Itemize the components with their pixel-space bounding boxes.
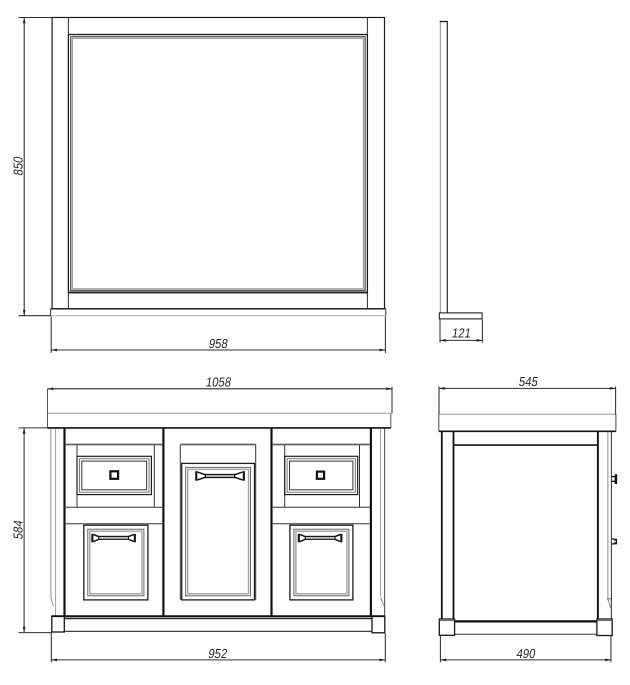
svg-text:584: 584 [11, 519, 26, 540]
svg-text:545: 545 [518, 374, 539, 389]
svg-text:490: 490 [515, 646, 536, 661]
svg-text:121: 121 [451, 326, 472, 341]
svg-text:958: 958 [208, 337, 229, 352]
svg-text:952: 952 [207, 646, 228, 661]
svg-text:1058: 1058 [205, 375, 233, 390]
svg-text:850: 850 [11, 155, 26, 176]
